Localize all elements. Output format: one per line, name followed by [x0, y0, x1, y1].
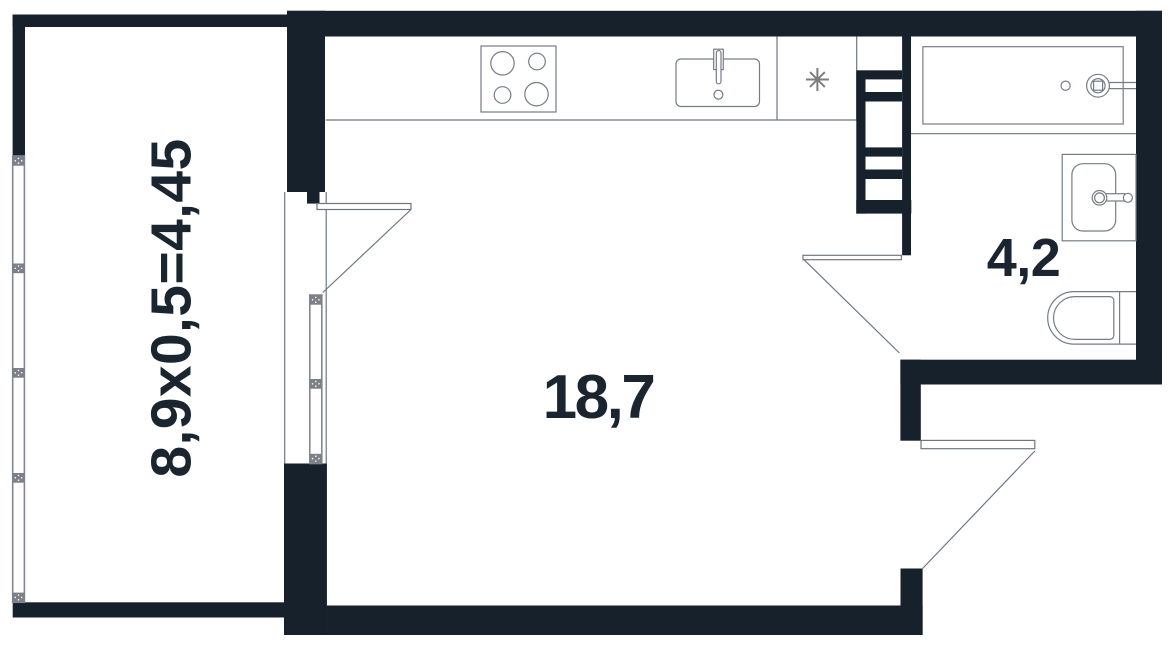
- svg-text:18,7: 18,7: [543, 363, 654, 432]
- svg-text:4,2: 4,2: [987, 228, 1061, 288]
- svg-text:8,9x0,5=4,45: 8,9x0,5=4,45: [140, 138, 204, 477]
